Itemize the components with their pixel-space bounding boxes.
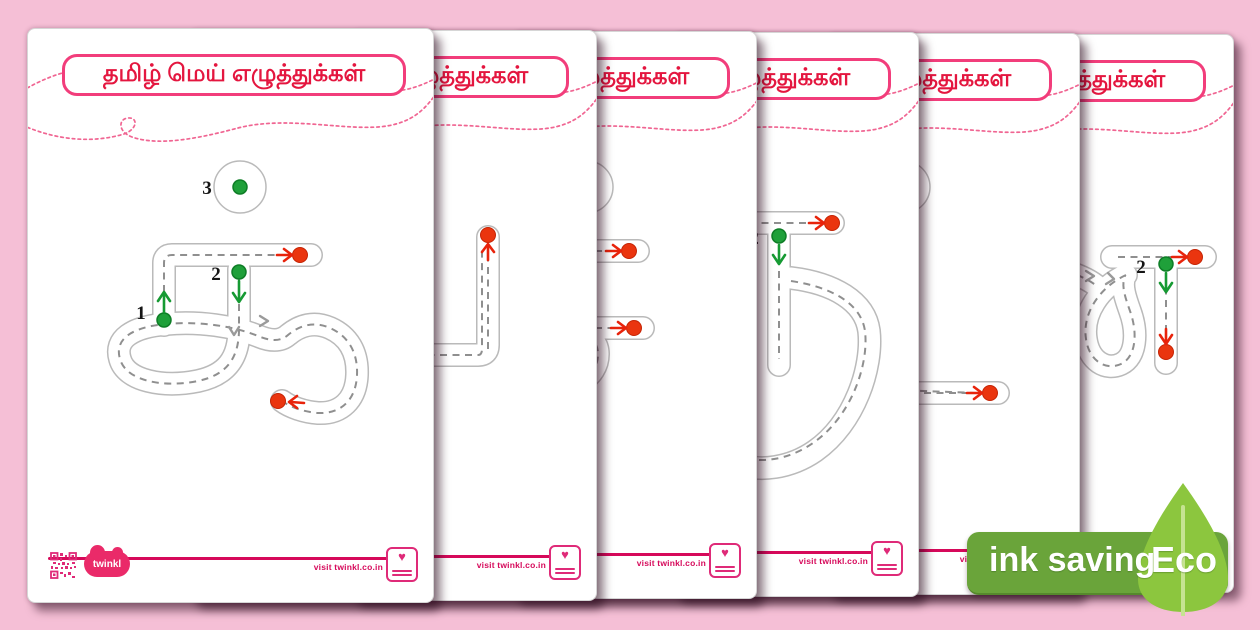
quality-stamp-icon: ♥ [709,543,741,578]
end-dot [627,321,642,336]
quality-stamp-icon: ♥ [871,541,903,576]
step-number: 1 [136,303,146,324]
start-dot [772,229,786,243]
step-number: 2 [211,264,221,285]
visit-link-text: visit twinkl.co.in [799,556,868,566]
worksheet-page-1[interactable]: 3 1 2 தமிழ் மெய் எழுத்துக்கள் [27,28,434,603]
eco-label: Eco [1151,539,1217,581]
end-dot [271,394,286,409]
step-number: 2 [1136,257,1146,278]
pulli-dot-circle [214,161,266,213]
end-dot [293,248,308,263]
end-dot [481,228,496,243]
ink-saving-badge: ink saving Eco [967,532,1228,595]
quality-stamp-icon: ♥ [549,545,581,580]
step-number: 3 [202,178,212,199]
end-dot [1159,345,1174,360]
end-dot [825,216,840,231]
start-dot [233,180,247,194]
guide-chevron [1086,271,1094,281]
guide-chevron [260,316,268,326]
visit-link-text: visit twinkl.co.in [637,558,706,568]
end-dot [1188,250,1203,265]
quality-stamp-icon: ♥ [386,547,418,582]
end-dot [983,386,998,401]
worksheet-title: தமிழ் மெய் எழுத்துக்கள் [62,54,406,96]
start-dot [1159,257,1173,271]
visit-link-text: visit twinkl.co.in [314,562,383,572]
preview-stage: 3 1 2 தமிழ் மெய் எழுத்துக்கள் [0,0,1260,630]
qr-code-icon [50,552,77,579]
start-dot [157,313,171,327]
ink-saving-label: ink saving [989,541,1155,580]
letter-trace-ka: 3 1 2 [28,29,433,602]
guide-chevron [1106,273,1114,284]
end-dot [622,244,637,259]
start-dot [232,265,246,279]
guide-chevron [229,327,239,335]
visit-link-text: visit twinkl.co.in [477,560,546,570]
twinkl-logo: twinkl [84,551,130,577]
